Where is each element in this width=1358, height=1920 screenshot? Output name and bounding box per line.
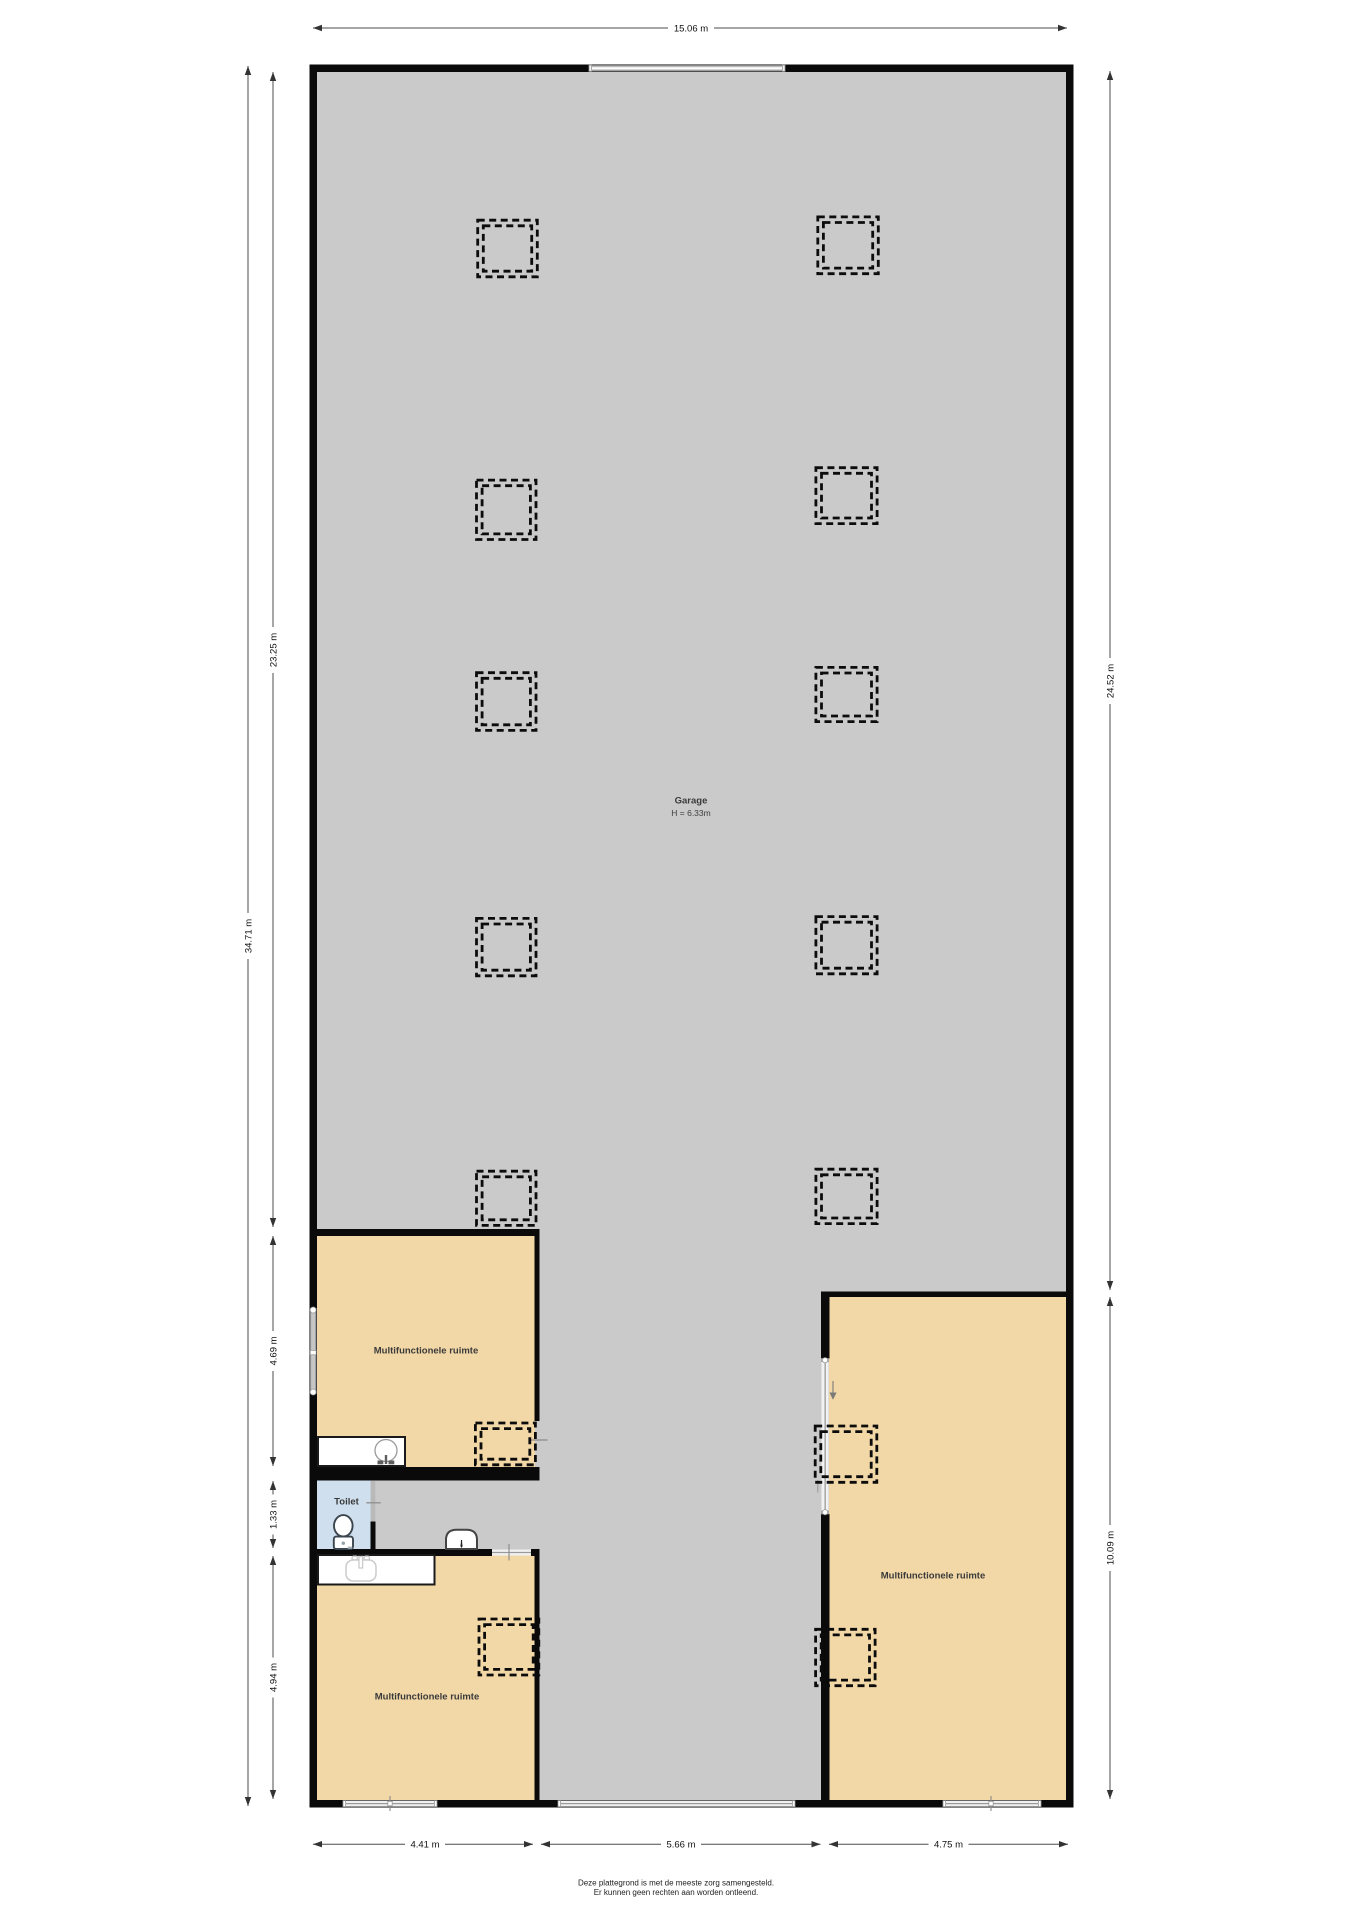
svg-text:Multifunctionele ruimte: Multifunctionele ruimte <box>374 1346 479 1357</box>
svg-text:4.94 m: 4.94 m <box>268 1663 279 1692</box>
svg-text:4.41 m: 4.41 m <box>410 1840 439 1851</box>
svg-text:Multifunctionele ruimte: Multifunctionele ruimte <box>375 1692 480 1703</box>
svg-text:4.69 m: 4.69 m <box>268 1336 279 1365</box>
svg-text:10.09 m: 10.09 m <box>1105 1531 1116 1565</box>
svg-text:4.75 m: 4.75 m <box>934 1840 963 1851</box>
svg-text:23.25 m: 23.25 m <box>268 633 279 667</box>
svg-text:5.66 m: 5.66 m <box>666 1840 695 1851</box>
svg-text:Toilet: Toilet <box>334 1496 359 1507</box>
svg-text:Garage: Garage <box>675 796 708 807</box>
svg-text:1.33 m: 1.33 m <box>268 1500 279 1529</box>
svg-text:24.52 m: 24.52 m <box>1105 664 1116 698</box>
svg-text:Multifunctionele ruimte: Multifunctionele ruimte <box>881 1571 986 1582</box>
svg-text:Deze plattegrond is met de mee: Deze plattegrond is met de meeste zorg s… <box>578 1879 774 1888</box>
svg-text:H = 6.33m: H = 6.33m <box>671 808 710 818</box>
svg-text:15.06 m: 15.06 m <box>674 23 708 34</box>
svg-text:Er kunnen geen rechten aan wor: Er kunnen geen rechten aan worden ontlee… <box>594 1888 759 1897</box>
svg-text:34.71 m: 34.71 m <box>243 919 254 953</box>
